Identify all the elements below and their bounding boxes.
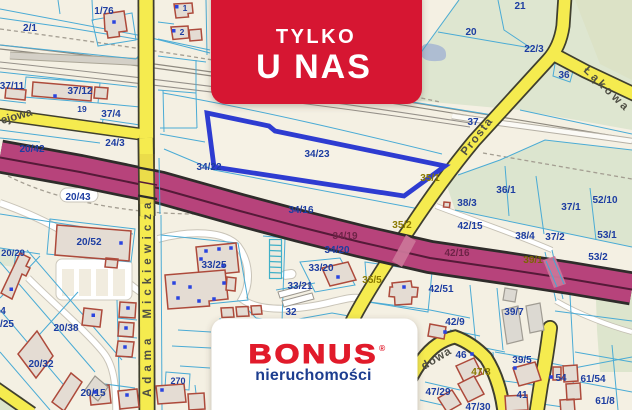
svg-text:270: 270 — [170, 376, 185, 386]
svg-text:47/30: 47/30 — [465, 402, 490, 410]
svg-text:21: 21 — [514, 1, 526, 12]
svg-text:®: ® — [379, 343, 386, 353]
svg-text:24/3: 24/3 — [105, 138, 125, 149]
svg-text:37/4: 37/4 — [101, 109, 121, 120]
svg-text:37/1: 37/1 — [561, 202, 581, 213]
svg-text:33/20: 33/20 — [308, 263, 333, 274]
svg-text:61/54: 61/54 — [580, 374, 605, 385]
svg-text:20/38: 20/38 — [53, 323, 78, 334]
svg-text:Adama Mickiewicza: Adama Mickiewicza — [142, 198, 154, 397]
svg-text:1/76: 1/76 — [94, 6, 114, 17]
svg-text:34/16: 34/16 — [288, 205, 313, 216]
svg-text:33/21: 33/21 — [287, 281, 312, 292]
svg-text:39/1: 39/1 — [523, 255, 543, 266]
svg-text:47/3: 47/3 — [471, 367, 491, 378]
svg-text:42/15: 42/15 — [457, 221, 482, 232]
svg-text:U NAS: U NAS — [256, 48, 372, 86]
svg-text:37/12: 37/12 — [67, 86, 92, 97]
svg-text:34/22: 34/22 — [196, 162, 221, 173]
svg-text:61/8: 61/8 — [595, 396, 615, 407]
svg-text:33/25: 33/25 — [201, 260, 226, 271]
svg-text:20/42: 20/42 — [19, 144, 44, 155]
svg-text:42/51: 42/51 — [428, 284, 453, 295]
svg-text:34/20: 34/20 — [324, 245, 349, 256]
svg-text:BONUS: BONUS — [249, 339, 379, 369]
svg-text:37/11: 37/11 — [0, 81, 25, 92]
svg-text:34/23: 34/23 — [304, 149, 329, 160]
svg-text:22/3: 22/3 — [524, 44, 544, 55]
svg-text:38/4: 38/4 — [515, 231, 535, 242]
svg-text:34/19: 34/19 — [332, 231, 357, 242]
svg-text:20/15: 20/15 — [80, 388, 105, 399]
svg-text:35/2: 35/2 — [392, 220, 412, 231]
svg-text:35/1: 35/1 — [420, 173, 440, 184]
svg-text:39/7: 39/7 — [504, 307, 524, 318]
svg-text:42/16: 42/16 — [444, 248, 469, 259]
svg-text:20/52: 20/52 — [76, 237, 101, 248]
svg-text:37/2: 37/2 — [545, 232, 565, 243]
svg-text:19: 19 — [77, 104, 87, 114]
svg-text:46: 46 — [455, 350, 467, 361]
svg-text:52/10: 52/10 — [592, 195, 617, 206]
svg-text:1: 1 — [183, 3, 188, 13]
svg-text:20/32: 20/32 — [28, 359, 53, 370]
svg-text:35/5: 35/5 — [362, 275, 382, 286]
svg-text:36: 36 — [558, 70, 570, 81]
svg-text:20/29: 20/29 — [1, 248, 25, 259]
svg-text:20/43: 20/43 — [65, 192, 90, 203]
svg-text:20: 20 — [465, 27, 477, 38]
svg-text:4: 4 — [0, 306, 6, 317]
svg-text:TYLKO: TYLKO — [276, 26, 356, 48]
svg-text:2: 2 — [180, 27, 185, 37]
svg-text:39/5: 39/5 — [512, 355, 532, 366]
svg-text:54: 54 — [555, 373, 567, 384]
svg-text:53/1: 53/1 — [597, 230, 617, 241]
svg-text:36/1: 36/1 — [496, 185, 516, 196]
svg-text:nieruchomości: nieruchomości — [255, 367, 371, 384]
svg-text:47/29: 47/29 — [425, 387, 450, 398]
svg-text:38/3: 38/3 — [457, 198, 477, 209]
svg-text:2/1: 2/1 — [23, 23, 37, 34]
svg-text:53/2: 53/2 — [588, 252, 608, 263]
svg-text:32: 32 — [285, 307, 297, 318]
svg-text:42/9: 42/9 — [445, 317, 465, 328]
svg-text:41: 41 — [516, 390, 528, 401]
svg-text:/25: /25 — [0, 319, 14, 330]
